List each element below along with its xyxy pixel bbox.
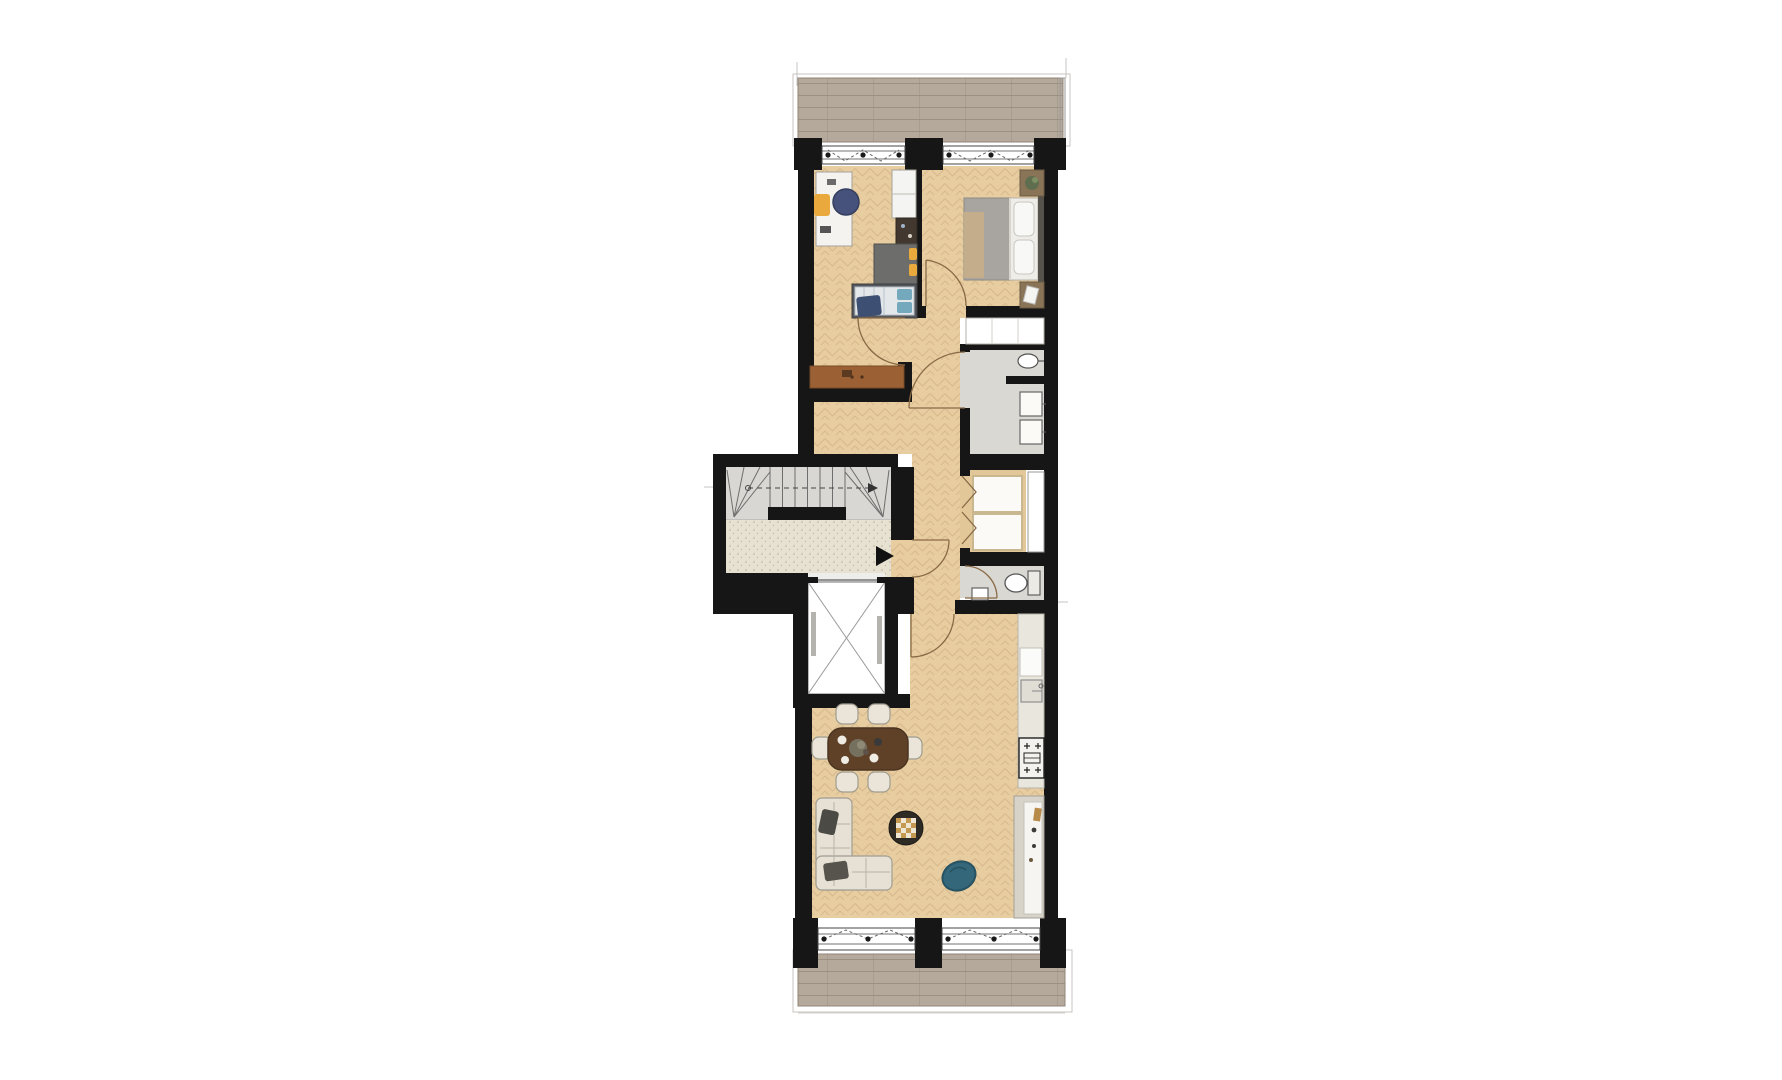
lobby-floor [726,520,891,577]
built-in-closet [966,318,1044,344]
lobby [726,520,891,577]
wall-left-upper [798,166,814,454]
elevator-rail-right [877,616,882,664]
single-bed [852,284,917,318]
floor-plan-page [0,0,1782,1080]
bed-throw [964,212,984,278]
bed-pillow-2 [1014,240,1034,274]
utility-appliance-2 [973,514,1022,550]
pillar-top-middle [905,138,943,170]
bed-blanket [856,295,882,317]
duct-shaft [1028,472,1044,552]
shelf-unit [896,218,917,244]
window-bottom-2 [942,928,1040,950]
pillar-bottom-right [1040,918,1066,968]
kitchen-appliance [1020,648,1042,676]
window-bottom-1 [818,928,915,950]
wall-right [1044,166,1058,918]
wall-elevator-left [793,573,808,708]
desk-chair [814,194,830,216]
pillar-top-right [1034,138,1066,170]
wall-utility-toilet [960,552,1058,566]
desk-item-2 [827,179,836,185]
stairwell [726,467,891,520]
nightstand-top [1020,170,1044,196]
elevator-rail-left [811,612,816,656]
bed-pillow [897,289,912,300]
tall-cabinet [1014,796,1044,918]
wall-bedroom1-bottom [798,388,912,402]
hallway-wide-floor [814,402,912,454]
cooktop [1019,738,1044,778]
bed-pillow-1 [1014,202,1034,236]
kitchen-sink [1021,680,1043,702]
sofa-pillow-2 [823,860,849,881]
double-bed [964,196,1044,282]
utility-appliance-1 [973,476,1022,512]
kitchen [1014,614,1044,918]
nightstand-bottom [1020,282,1044,308]
sideboard [810,366,904,388]
toilet-cistern [1028,571,1040,595]
utility-closet [973,476,1022,550]
desk-item [820,226,831,233]
stair-landing-edge [768,507,846,520]
wall-core-top [713,454,898,467]
washer [1020,392,1042,416]
elevator [808,573,885,694]
wall-left-lower [795,700,812,918]
dryer [1020,420,1042,444]
wall-elevator-right [885,577,898,708]
wall-bath-utility [960,454,1058,470]
pillar-bottom-left [793,918,818,968]
wall-closet-block [713,573,798,614]
wall-bath-stub [1006,376,1044,384]
dining-table [828,728,908,770]
lounge-pod-chair [833,189,859,215]
window-top-1 [822,146,905,164]
washbasin [1018,354,1038,368]
toilet-bowl [1005,574,1027,592]
balcony-top-deck [798,78,1063,142]
bed-headboard [1038,196,1044,282]
coffee-table [889,811,923,845]
floor-plan-canvas [0,0,1782,1080]
wall-hall-bottom [955,600,1058,614]
window-top-2 [943,146,1034,164]
pillar-top-left [794,138,822,170]
balcony-top [793,74,1070,146]
sideboard-item [842,370,852,377]
window-hinge-icon [825,152,830,157]
pillar-bottom-middle [915,918,942,968]
